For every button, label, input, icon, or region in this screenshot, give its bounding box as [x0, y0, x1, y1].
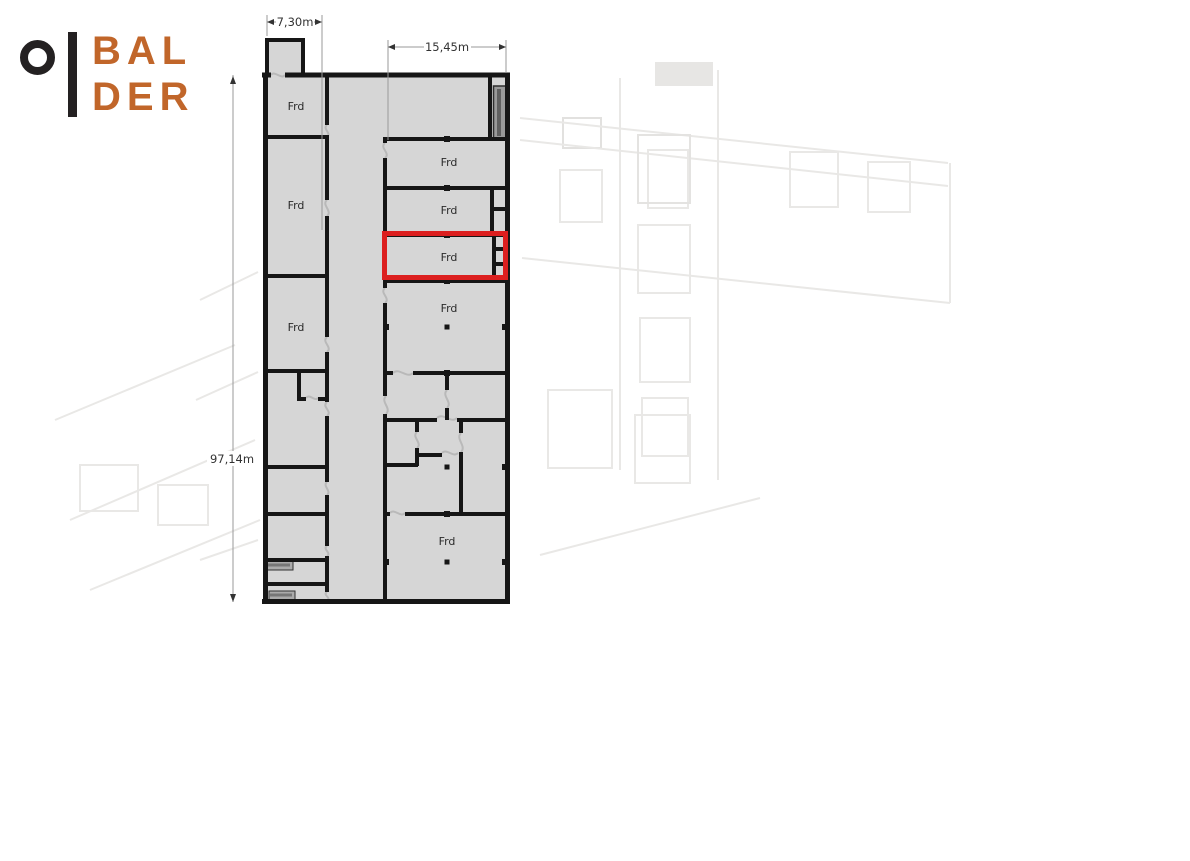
floor-plan: Frd Frd Frd Frd Frd Frd Frd Frd [0, 0, 1190, 861]
room-label: Frd [441, 204, 458, 217]
room-label: Frd [441, 302, 458, 315]
room-label: Frd [288, 321, 305, 334]
room-label: Frd [441, 156, 458, 169]
shaft-hatch [494, 86, 507, 139]
room-label: Frd [439, 535, 456, 548]
room-label-highlighted: Frd [441, 251, 458, 264]
dimension-label-left-wing: 7,30m [277, 15, 314, 29]
room-label: Frd [288, 199, 305, 212]
dimension-label-total-length: 97,14m [210, 452, 254, 466]
room-label: Frd [288, 100, 305, 113]
dimension-label-right-wing: 15,45m [425, 40, 469, 54]
page: BAL DER [0, 0, 1190, 861]
